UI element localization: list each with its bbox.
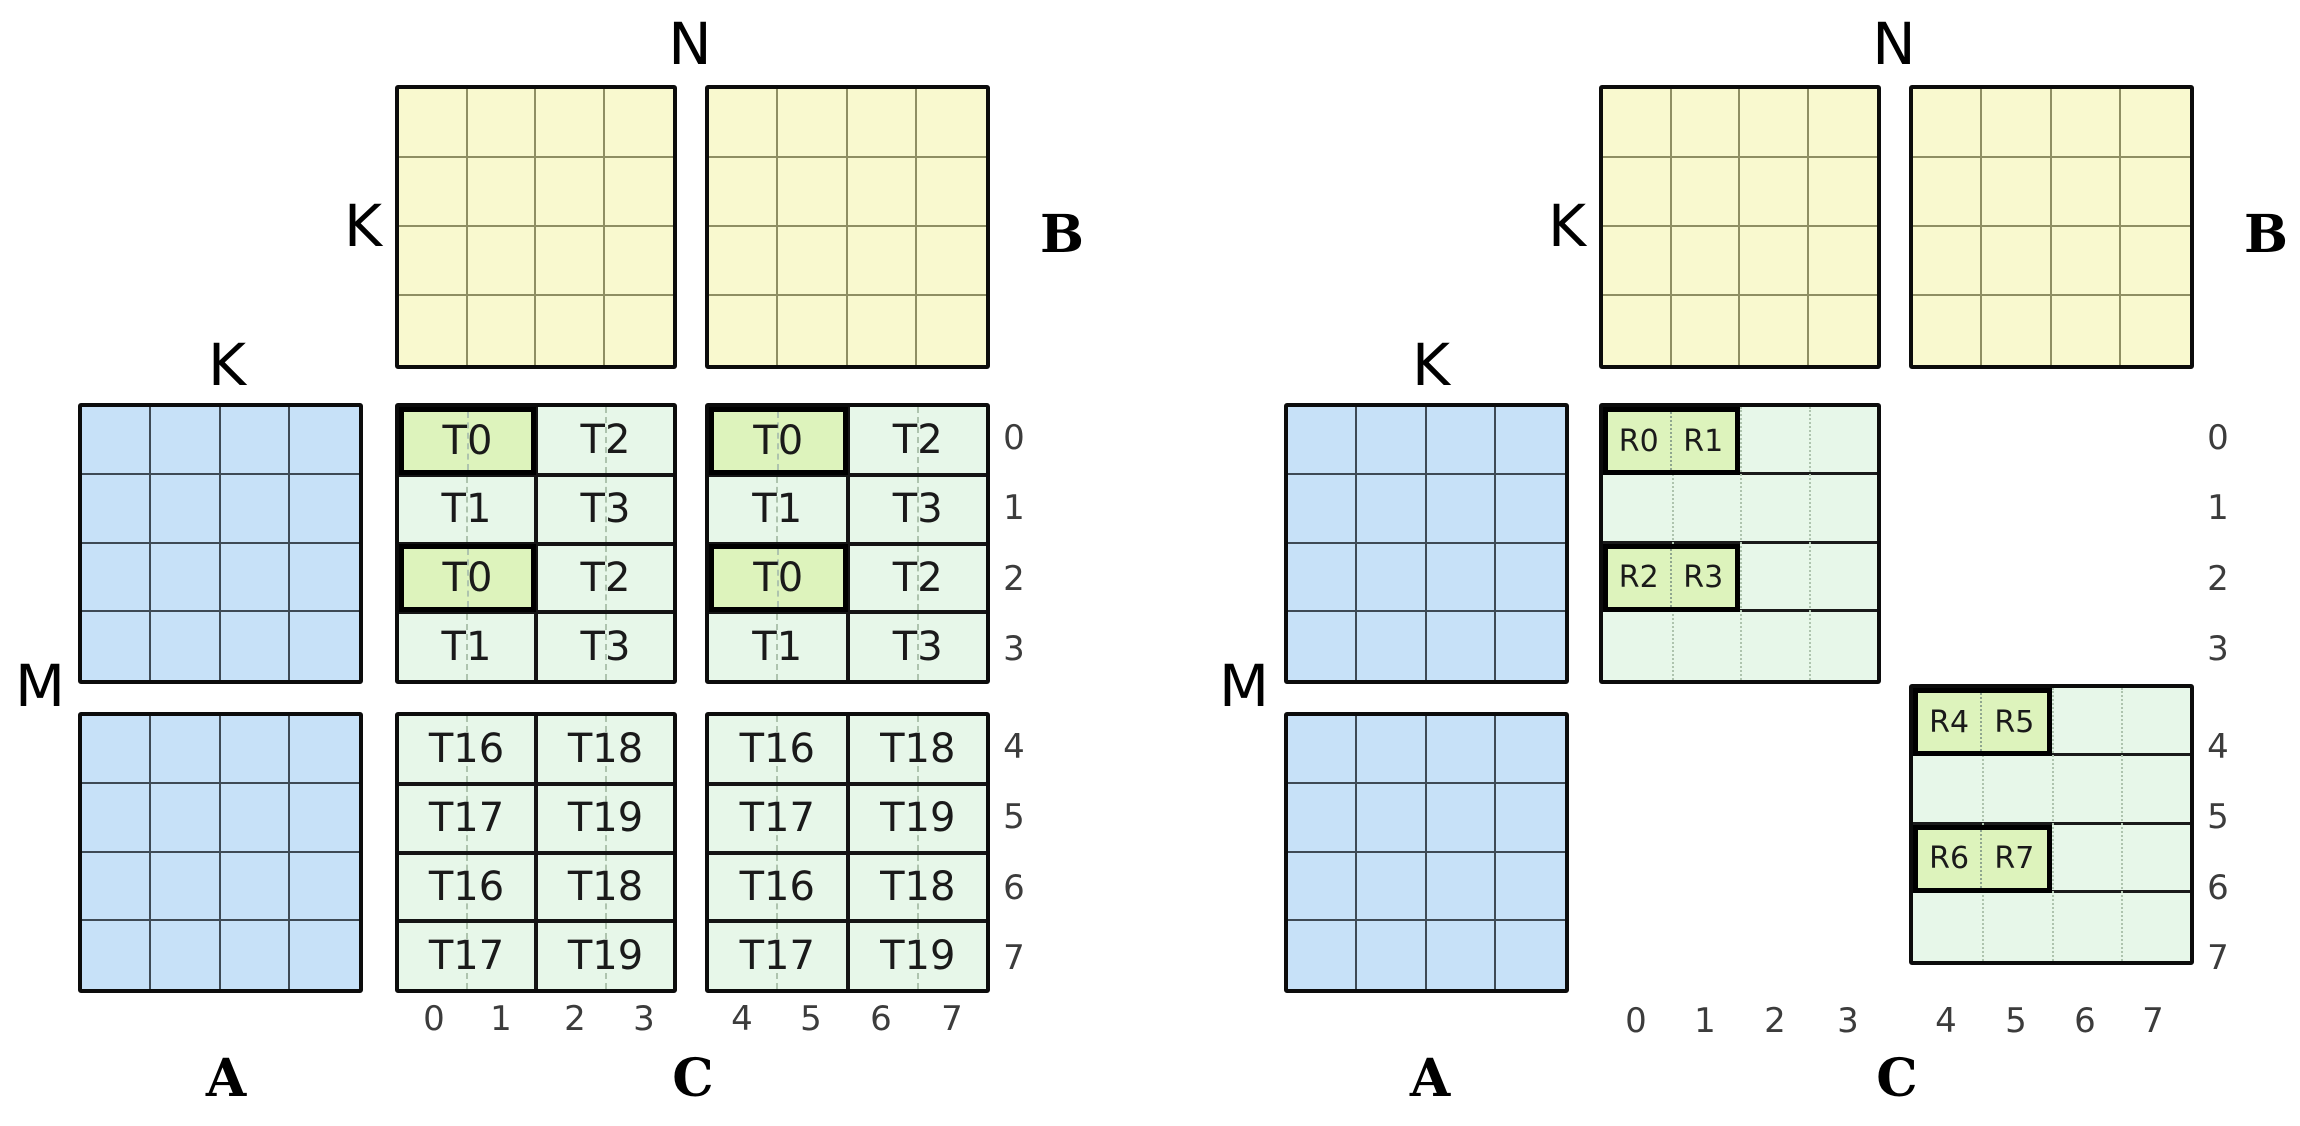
grid-cell [778,296,847,365]
grid-cell [82,612,151,680]
grid-cell [1809,296,1878,365]
c-thread-tile-label: T2 [581,555,631,601]
c-thread-tile-label: T1 [442,486,492,532]
grid-cell [221,921,290,989]
col-index-label: 0 [1625,1004,1647,1038]
grid-cell [82,921,151,989]
matrix-b-label: B [1040,209,1084,261]
grid-cell [290,612,359,680]
grid-cell [1288,475,1357,543]
row-index-label: 1 [1003,491,1025,525]
grid-cell [2121,227,2190,296]
col-index-label: 0 [423,1002,445,1036]
grid-cell [151,784,220,852]
grid-cell [399,227,468,296]
c-thread-tile: T18 [848,853,987,921]
c-thread-tile: T16 [399,716,536,784]
grid-cell [221,716,290,784]
c-thread-tile: T17 [709,784,848,852]
grid-cell [2121,158,2190,227]
grid-cell [1427,853,1496,921]
grid-cell [151,853,220,921]
matrix-c-label: C [1876,1053,1917,1105]
grid-cell [1913,296,1982,365]
grid-cell [290,784,359,852]
grid-cell [2052,158,2121,227]
grid-cell [1288,921,1357,989]
grid-cell [778,89,847,158]
matrix-a-label: A [206,1053,246,1105]
grid-cell [1672,158,1741,227]
grid-cell [468,296,537,365]
c-thread-tile: T3 [536,475,673,543]
dim-label-n: N [668,15,711,73]
row-index-label: 0 [2207,421,2229,455]
matrix-a-panel-top [1284,403,1569,684]
col-index-label: 5 [2005,1004,2027,1038]
matrix-a-panel-bottom [78,712,363,993]
matrix-c-block-bottom-left: T16T18T17T19T16T18T17T19 [395,712,677,993]
grid-cell [221,407,290,475]
dim-label-n: N [1872,15,1915,73]
dim-label-k-rows-of-b: K [344,197,382,255]
grid-cell [1357,716,1426,784]
matrix-b-panel-right [705,85,990,369]
grid-cell [1982,158,2051,227]
grid-cell [1603,158,1672,227]
row-index-label: 5 [1003,800,1025,834]
c-thread-tile: T16 [709,716,848,784]
grid-cell [1288,716,1357,784]
grid-cell [221,544,290,612]
c-thread-tile-label: T2 [581,417,631,463]
grid-cell [290,716,359,784]
c-thread-tile: T2 [536,544,673,612]
col-index-label: 4 [731,1002,753,1036]
grid-cell [1427,407,1496,475]
grid-cell [1603,89,1672,158]
grid-cell [1427,612,1496,680]
c-thread-tile: T1 [709,612,848,680]
grid-cell [82,544,151,612]
grid-cell [2052,89,2121,158]
register-cell: R2 [1608,549,1672,607]
grid-cell [1357,475,1426,543]
c-thread-tile: T16 [399,853,536,921]
col-index-label: 5 [800,1002,822,1036]
matrix-a-panel-top [78,403,363,684]
c-thread-tile: T17 [399,921,536,989]
grid-cell [709,89,778,158]
c-thread-tile-label: T1 [442,624,492,670]
matrix-b-panel-left [395,85,677,369]
grid-cell [1357,407,1426,475]
grid-cell [536,296,605,365]
register-tile-box: R6R7 [1913,825,2052,893]
grid-cell [1427,716,1496,784]
column-divider [2121,688,2123,961]
c-thread-tile: T3 [536,612,673,680]
register-cell: R7 [1982,830,2046,888]
c-thread-tile: T17 [399,784,536,852]
grid-cell [536,89,605,158]
c-thread-tile-label: T1 [752,624,802,670]
c-thread-tile-label: T3 [581,486,631,532]
row-index-label: 5 [2207,800,2229,834]
matrix-c-label: C [672,1053,713,1105]
col-index-label: 4 [1935,1004,1957,1038]
row-index-label: 6 [2207,871,2229,905]
c-thread-tile-label: T3 [581,624,631,670]
col-index-label: 2 [564,1002,586,1036]
grid-cell [1427,544,1496,612]
matrix-b-panel-left [1599,85,1881,369]
grid-cell [2121,89,2190,158]
c-thread-tile: T2 [848,544,987,612]
c-thread-tile: T2 [536,407,673,475]
tiling-diagram: N K B K M A C T0T2T1T3T0T2T1T3 T0T2T1T3T… [0,0,2300,1126]
c-thread-tile: T0 [399,544,536,612]
c-thread-tile: T19 [848,921,987,989]
grid-cell [917,296,986,365]
row-index-label: 2 [2207,562,2229,596]
c-thread-tile-label: T2 [893,555,943,601]
register-cell: R6 [1918,830,1982,888]
grid-cell [709,296,778,365]
c-thread-tile-label: T19 [568,933,643,979]
c-thread-tile-label: T0 [753,555,803,601]
col-index-label: 6 [870,1002,892,1036]
grid-cell [1288,407,1357,475]
grid-cell [1496,921,1565,989]
grid-cell [399,158,468,227]
register-cell: R3 [1672,549,1736,607]
grid-cell [290,407,359,475]
grid-cell [1672,89,1741,158]
row-index-label: 7 [2207,941,2229,975]
col-index-label: 7 [2142,1004,2164,1038]
row-index-label: 4 [1003,730,1025,764]
c-thread-tile-label: T17 [740,795,815,841]
c-thread-tile-label: T1 [752,486,802,532]
c-thread-tile: T1 [709,475,848,543]
c-thread-tile: T16 [709,853,848,921]
grid-cell [151,921,220,989]
c-thread-tile: T18 [536,853,673,921]
c-thread-tile-label: T2 [893,417,943,463]
grid-cell [1603,296,1672,365]
c-thread-tile: T1 [399,612,536,680]
grid-cell [1603,227,1672,296]
grid-cell [1809,89,1878,158]
grid-cell [151,544,220,612]
grid-cell [917,89,986,158]
grid-cell [151,475,220,543]
grid-cell [151,612,220,680]
c-thread-tile: T19 [536,784,673,852]
grid-cell [778,227,847,296]
grid-cell [1672,227,1741,296]
c-thread-tile-label: T16 [740,864,815,910]
grid-cell [709,158,778,227]
grid-cell [1357,921,1426,989]
c-thread-tile-label: T18 [880,864,955,910]
grid-cell [848,227,917,296]
grid-cell [151,407,220,475]
grid-cell [778,158,847,227]
matrix-a-label: A [1410,1053,1450,1105]
dim-label-k-cols-of-a: K [208,336,246,394]
row-index-label: 3 [2207,632,2229,666]
col-index-label: 6 [2074,1004,2096,1038]
dim-label-m: M [15,657,65,715]
grid-cell [1496,612,1565,680]
grid-cell [1809,158,1878,227]
grid-cell [221,784,290,852]
grid-cell [605,89,674,158]
grid-cell [1740,158,1809,227]
grid-cell [82,407,151,475]
grid-cell [1288,784,1357,852]
grid-cell [1288,544,1357,612]
register-tile-box: R0R1 [1603,407,1740,475]
register-cell: R1 [1672,412,1736,470]
grid-cell [605,227,674,296]
grid-cell [82,475,151,543]
grid-cell [2121,296,2190,365]
matrix-c-block-top-right: T0T2T1T3T0T2T1T3 [705,403,990,684]
c-thread-tile: T18 [536,716,673,784]
register-cell: R0 [1608,412,1672,470]
register-tile-box: R2R3 [1603,544,1740,612]
grid-cell [1982,89,2051,158]
matrix-b-panel-right [1909,85,2194,369]
c-thread-tile-label: T19 [880,933,955,979]
grid-cell [82,853,151,921]
grid-cell [290,921,359,989]
grid-cell [1740,227,1809,296]
c-thread-tile: T0 [399,407,536,475]
row-index-label: 0 [1003,421,1025,455]
grid-cell [848,296,917,365]
register-cell: R5 [1982,693,2046,751]
col-index-label: 3 [1837,1004,1859,1038]
grid-cell [468,89,537,158]
row-index-label: 1 [2207,491,2229,525]
grid-cell [1288,853,1357,921]
grid-cell [1740,89,1809,158]
c-thread-tile-label: T3 [893,624,943,670]
row-index-label: 2 [1003,562,1025,596]
grid-cell [1496,544,1565,612]
c-thread-tile-label: T18 [568,864,643,910]
grid-cell [399,89,468,158]
grid-cell [468,227,537,296]
c-thread-tile: T2 [848,407,987,475]
grid-cell [1357,544,1426,612]
grid-cell [1982,296,2051,365]
c-thread-tile: T18 [848,716,987,784]
dim-label-m: M [1219,657,1269,715]
grid-cell [1496,407,1565,475]
grid-cell [1913,158,1982,227]
grid-cell [290,475,359,543]
c-thread-tile-label: T0 [443,555,493,601]
grid-cell [1496,475,1565,543]
grid-cell [1913,227,1982,296]
col-index-label: 1 [1694,1004,1716,1038]
matrix-c-block-top-right: R4R5R6R7 [1909,684,2194,965]
grid-cell [221,853,290,921]
grid-cell [82,716,151,784]
matrix-c-block-top-left: T0T2T1T3T0T2T1T3 [395,403,677,684]
col-index-label: 3 [633,1002,655,1036]
c-thread-tile-label: T16 [740,726,815,772]
grid-cell [2052,227,2121,296]
matrix-a-panel-bottom [1284,712,1569,993]
grid-cell [1357,784,1426,852]
c-thread-tile-label: T18 [568,726,643,772]
column-divider [2052,688,2054,961]
grid-cell [151,716,220,784]
matrix-c-block-bottom-right: T16T18T17T19T16T18T17T19 [705,712,990,993]
grid-cell [1740,296,1809,365]
grid-cell [1496,853,1565,921]
c-thread-tile-label: T17 [740,933,815,979]
grid-cell [2052,296,2121,365]
grid-cell [1357,853,1426,921]
grid-cell [605,158,674,227]
grid-cell [221,612,290,680]
grid-cell [1913,89,1982,158]
c-thread-tile-label: T19 [880,795,955,841]
grid-cell [1427,921,1496,989]
grid-cell [605,296,674,365]
c-thread-tile-label: T19 [568,795,643,841]
register-tile-box: R4R5 [1913,688,2052,756]
grid-cell [536,158,605,227]
grid-cell [1496,784,1565,852]
grid-cell [536,227,605,296]
c-thread-tile-label: T0 [753,418,803,464]
matrix-b-label: B [2244,209,2288,261]
grid-cell [848,89,917,158]
matrix-c-block-top-left: R0R1R2R3 [1599,403,1881,684]
grid-cell [399,296,468,365]
row-index-label: 4 [2207,730,2229,764]
c-thread-tile-label: T3 [893,486,943,532]
c-thread-tile-label: T18 [880,726,955,772]
col-index-label: 7 [941,1002,963,1036]
c-thread-tile: T17 [709,921,848,989]
c-thread-tile: T3 [848,612,987,680]
c-thread-tile-label: T16 [429,864,504,910]
grid-cell [1427,784,1496,852]
grid-cell [848,158,917,227]
c-thread-tile: T19 [536,921,673,989]
col-index-label: 1 [490,1002,512,1036]
row-index-label: 7 [1003,941,1025,975]
c-thread-tile: T3 [848,475,987,543]
grid-cell [1982,227,2051,296]
c-thread-tile-label: T16 [429,726,504,772]
c-thread-tile-label: T0 [443,418,493,464]
grid-cell [82,784,151,852]
grid-cell [1496,716,1565,784]
dim-label-k-rows-of-b: K [1548,197,1586,255]
dim-label-k-cols-of-a: K [1412,336,1450,394]
c-thread-tile: T1 [399,475,536,543]
c-thread-tile: T0 [709,544,848,612]
grid-cell [709,227,778,296]
grid-cell [1809,227,1878,296]
grid-cell [1357,612,1426,680]
c-thread-tile: T19 [848,784,987,852]
grid-cell [917,158,986,227]
grid-cell [221,475,290,543]
row-index-label: 3 [1003,632,1025,666]
grid-cell [468,158,537,227]
grid-cell [1672,296,1741,365]
grid-cell [1427,475,1496,543]
c-thread-tile-label: T17 [429,933,504,979]
column-divider [1740,407,1742,680]
column-divider [1809,407,1811,680]
row-index-label: 6 [1003,871,1025,905]
grid-cell [917,227,986,296]
c-thread-tile-label: T17 [429,795,504,841]
c-thread-tile: T0 [709,407,848,475]
grid-cell [290,544,359,612]
grid-cell [1288,612,1357,680]
register-cell: R4 [1918,693,1982,751]
col-index-label: 2 [1764,1004,1786,1038]
grid-cell [290,853,359,921]
